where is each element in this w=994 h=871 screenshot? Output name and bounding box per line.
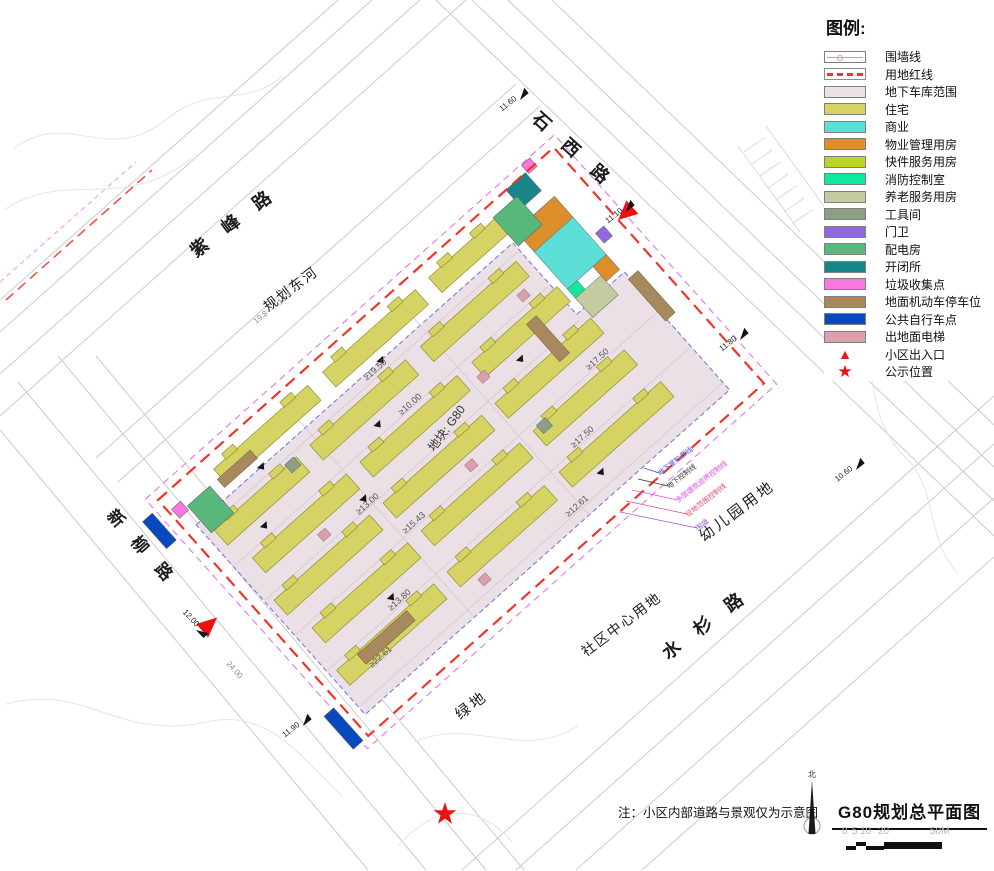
red-line-swatch	[824, 68, 866, 80]
legend-label: 物业管理用房	[885, 136, 957, 153]
color-swatch	[824, 121, 866, 133]
contour	[414, 726, 578, 742]
legend-label: 地下车库范围	[885, 83, 957, 100]
river-band-edge	[766, 126, 828, 212]
contour	[14, 76, 282, 148]
road-label-xinliu: 新 柳 路	[103, 505, 182, 589]
legend-label: 住宅	[885, 101, 909, 118]
legend-label: 公示位置	[885, 363, 933, 380]
legend-item: 住宅	[824, 101, 992, 119]
legend-item: 养老服务用房	[824, 188, 992, 206]
scale-bar	[838, 834, 958, 854]
legend-item: 工具间	[824, 206, 992, 224]
elevation-triangle	[736, 328, 749, 340]
color-swatch	[824, 191, 866, 203]
legend-item: ▲小区出入口	[824, 346, 992, 364]
legend-label: 配电房	[885, 241, 921, 258]
legend-item: 门卫	[824, 223, 992, 241]
color-swatch	[824, 103, 866, 115]
green-space-label: 绿地	[452, 688, 491, 723]
road-line	[0, 0, 338, 300]
garbage-collection-point	[522, 158, 538, 174]
legend-label: 垃圾收集点	[885, 276, 945, 293]
legend: 图例: 围墙线 用地红线 地下车库范围 住宅 商业 物业管理用房 快件服务用房 …	[824, 14, 992, 381]
legend-label: 商业	[885, 118, 909, 135]
wall-line-swatch	[824, 51, 866, 63]
community-center-label: 社区中心用地	[578, 589, 664, 660]
legend-label: 小区出入口	[885, 346, 945, 363]
gate-guard-room	[596, 226, 613, 243]
river-label: 规划东河	[260, 263, 321, 314]
legend-label: 消防控制室	[885, 171, 945, 188]
legend-item: 消防控制室	[824, 171, 992, 189]
color-swatch	[824, 173, 866, 185]
road-line	[0, 0, 420, 374]
legend-item: 出地面电梯	[824, 328, 992, 346]
north-arrow: 北	[798, 768, 826, 840]
triangle-icon: ▲	[838, 348, 852, 360]
legend-label: 门卫	[885, 223, 909, 240]
legend-item: 商业	[824, 118, 992, 136]
legend-item: 开闭所	[824, 258, 992, 276]
color-swatch	[824, 86, 866, 98]
road-line	[0, 0, 372, 332]
legend-title: 图例:	[826, 14, 992, 39]
contour	[4, 158, 192, 210]
legend-item: ★公示位置	[824, 363, 992, 381]
dim-text: 24.00	[225, 659, 245, 680]
road-label-shixi: 石 西 路	[528, 107, 620, 193]
legend-item: 物业管理用房	[824, 136, 992, 154]
legend-label: 用地红线	[885, 66, 933, 83]
river-hatch-band	[738, 126, 828, 232]
color-swatch	[824, 138, 866, 150]
legend-item: 地面机动车停车位	[824, 293, 992, 311]
road-label-zifeng: 紫 峰 路	[186, 182, 282, 261]
legend-label: 出地面电梯	[885, 328, 945, 345]
bicycle-point	[324, 708, 363, 750]
color-swatch	[824, 261, 866, 273]
title-block: 北 G80规划总平面图 0 5 10 20 50M	[788, 768, 994, 868]
scale-segment	[866, 846, 884, 850]
color-swatch	[824, 278, 866, 290]
legend-item: 快件服务用房	[824, 153, 992, 171]
kindergarten-label: 幼儿园用地	[696, 477, 778, 545]
elevation-triangle	[852, 458, 865, 470]
legend-label: 围墙线	[885, 48, 921, 65]
scale-segment	[846, 846, 856, 850]
north-needle	[809, 780, 816, 834]
legend-item: 围墙线	[824, 48, 992, 66]
scale-segment	[856, 842, 866, 846]
elevation-marker: 11.60	[498, 86, 529, 113]
adjacent-setback-line	[0, 162, 136, 282]
boundary-note: 多层建筑退界控制线	[674, 459, 729, 505]
elevation-value: 10.60	[833, 464, 855, 484]
color-swatch	[824, 296, 866, 308]
river-hatching	[744, 138, 812, 224]
legend-label: 养老服务用房	[885, 188, 957, 205]
legend-label: 开闭所	[885, 258, 921, 275]
legend-label: 公共自行车点	[885, 311, 957, 328]
north-label: 北	[808, 770, 816, 779]
legend-label: 工具间	[885, 206, 921, 223]
color-swatch	[824, 243, 866, 255]
legend-item: 公共自行车点	[824, 311, 992, 329]
leader-line	[638, 479, 668, 486]
legend-item: 垃圾收集点	[824, 276, 992, 294]
legend-label: 快件服务用房	[885, 153, 957, 170]
elevation-marker: 11.90	[281, 712, 312, 739]
color-swatch	[824, 331, 866, 343]
entrance-triangle-icon: ▲	[824, 348, 866, 360]
river-band-edge	[738, 146, 800, 232]
elevation-marker: 10.60	[833, 456, 865, 483]
notice-star-icon: ★	[824, 366, 866, 378]
site-plan-canvas: 地块: G80 ≥19.50 ≥10.00 ≥13.00 ≥15.43 ≥17.…	[0, 0, 994, 871]
contour	[6, 699, 342, 796]
legend-item: 地下车库范围	[824, 83, 992, 101]
color-swatch	[824, 156, 866, 168]
elevation-value: 11.60	[498, 94, 519, 113]
elevation-triangle	[516, 88, 529, 100]
color-swatch	[824, 208, 866, 220]
legend-label: 地面机动车停车位	[885, 293, 981, 310]
elevation-value: 11.90	[281, 720, 302, 739]
color-swatch	[824, 226, 866, 238]
legend-item: 用地红线	[824, 66, 992, 84]
garbage-collection-point	[172, 501, 189, 518]
legend-item: 配电房	[824, 241, 992, 259]
scale-segment	[884, 842, 942, 849]
color-swatch	[824, 313, 866, 325]
star-icon: ★	[837, 366, 852, 378]
